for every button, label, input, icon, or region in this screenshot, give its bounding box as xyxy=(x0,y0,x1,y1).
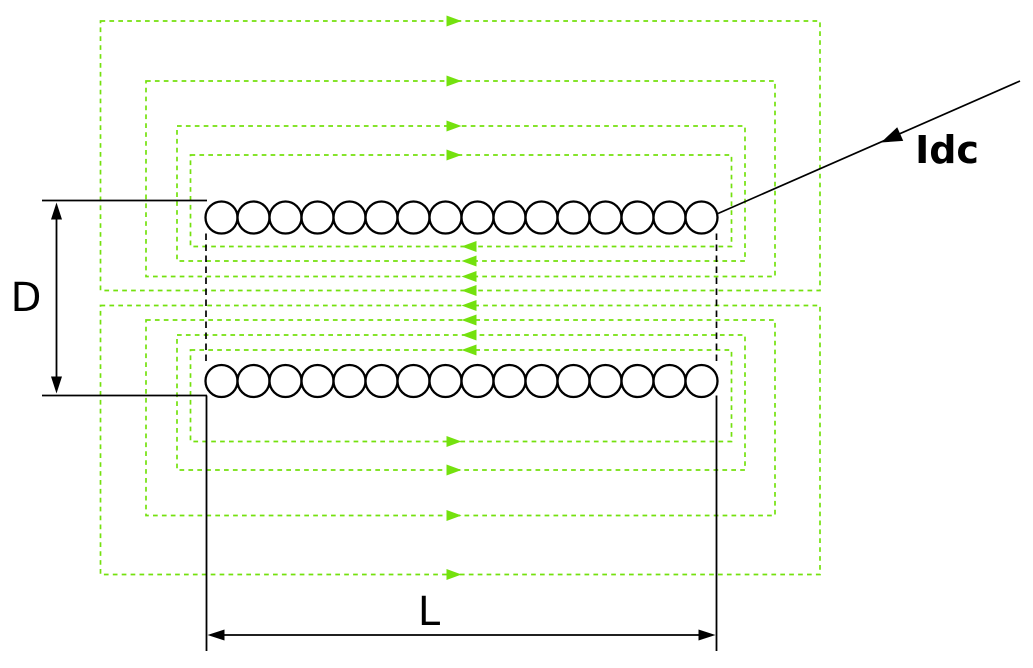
field-direction-arrow xyxy=(447,76,462,87)
current-label: Idc xyxy=(915,131,979,169)
coil-turn-top-winding-row xyxy=(526,202,558,234)
coil-turn-bottom-winding-row xyxy=(334,365,366,397)
field-direction-arrow xyxy=(462,330,477,341)
field-direction-arrow xyxy=(447,121,462,132)
current-direction-arrowhead xyxy=(881,127,903,142)
diameter-dim-label: D xyxy=(11,278,42,318)
field-direction-arrow xyxy=(462,345,477,356)
coil-turn-top-winding-row xyxy=(654,202,686,234)
coil-turn-bottom-winding-row xyxy=(494,365,526,397)
field-direction-arrow xyxy=(462,315,477,326)
field-line-loop xyxy=(177,335,745,470)
length-arrowhead-left xyxy=(208,630,225,641)
field-line-loop xyxy=(191,155,732,247)
coil-turn-bottom-winding-row xyxy=(558,365,590,397)
coil-turn-bottom-winding-row xyxy=(686,365,718,397)
coil-turn-bottom-winding-row xyxy=(238,365,270,397)
coil-turn-bottom-winding-row xyxy=(206,365,238,397)
field-direction-arrow xyxy=(462,300,477,311)
length-dim-label: L xyxy=(418,592,440,632)
field-direction-arrow xyxy=(462,241,477,252)
coil-turn-bottom-winding-row xyxy=(398,365,430,397)
field-direction-arrow xyxy=(447,569,462,580)
coil-turn-bottom-winding-row xyxy=(590,365,622,397)
field-direction-arrow xyxy=(462,256,477,267)
diameter-arrowhead-down xyxy=(51,377,62,394)
coil-turn-bottom-winding-row xyxy=(654,365,686,397)
solenoid-field-diagram: D L Idc xyxy=(0,0,1033,668)
coil-turn-top-winding-row xyxy=(622,202,654,234)
coil-turn-top-winding-row xyxy=(590,202,622,234)
coil-turn-bottom-winding-row xyxy=(366,365,398,397)
field-line-loop xyxy=(177,126,745,261)
coil-turn-top-winding-row xyxy=(686,202,718,234)
field-direction-arrow xyxy=(447,150,462,161)
coil-turn-top-winding-row xyxy=(270,202,302,234)
coil-turn-top-winding-row xyxy=(206,202,238,234)
field-direction-arrow xyxy=(447,465,462,476)
coil-turn-bottom-winding-row xyxy=(302,365,334,397)
coil-turn-top-winding-row xyxy=(302,202,334,234)
coil-turn-bottom-winding-row xyxy=(622,365,654,397)
length-arrowhead-right xyxy=(699,630,716,641)
diameter-arrowhead-up xyxy=(51,203,62,220)
field-line-loop xyxy=(191,350,732,442)
coil-turn-top-winding-row xyxy=(462,202,494,234)
coil-turn-bottom-winding-row xyxy=(430,365,462,397)
field-line-loop xyxy=(101,306,821,575)
coil-turn-top-winding-row xyxy=(430,202,462,234)
coil-turn-top-winding-row xyxy=(334,202,366,234)
coil-turn-bottom-winding-row xyxy=(270,365,302,397)
coil-turn-top-winding-row xyxy=(398,202,430,234)
coil-turn-bottom-winding-row xyxy=(526,365,558,397)
field-direction-arrow xyxy=(447,510,462,521)
field-direction-arrow xyxy=(462,271,477,282)
coil-turn-bottom-winding-row xyxy=(462,365,494,397)
diagram-canvas xyxy=(0,0,1033,668)
coil-turn-top-winding-row xyxy=(494,202,526,234)
coil-turn-top-winding-row xyxy=(366,202,398,234)
field-direction-arrow xyxy=(462,285,477,296)
field-direction-arrow xyxy=(447,16,462,27)
coil-turn-top-winding-row xyxy=(558,202,590,234)
coil-turn-top-winding-row xyxy=(238,202,270,234)
field-direction-arrow xyxy=(447,436,462,447)
